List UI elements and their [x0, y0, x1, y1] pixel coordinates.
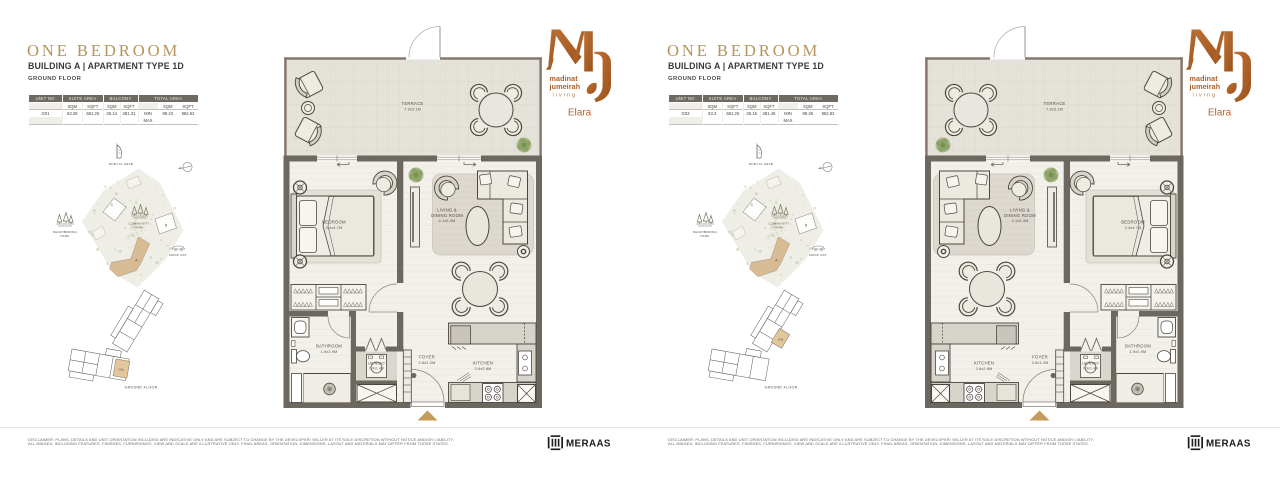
svg-text:DINING ROOM: DINING ROOM: [1004, 213, 1036, 218]
svg-text:BATHROOM: BATHROOM: [1125, 344, 1151, 349]
svg-text:LAUNDRY: LAUNDRY: [368, 362, 386, 366]
svg-text:0.9x1.4M: 0.9x1.4M: [369, 366, 384, 370]
svg-text:LIVING &: LIVING &: [437, 208, 457, 213]
svg-text:TERRACE: TERRACE: [1044, 101, 1066, 106]
svg-text:3.4x4.7M: 3.4x4.7M: [326, 226, 343, 230]
svg-text:4.1x5.3M: 4.1x5.3M: [439, 219, 456, 223]
svg-text:1.9x2.9M: 1.9x2.9M: [321, 350, 338, 354]
svg-text:LIVING &: LIVING &: [1010, 208, 1030, 213]
svg-text:TERRACE: TERRACE: [402, 101, 424, 106]
svg-text:KITCHEN: KITCHEN: [974, 361, 994, 366]
svg-text:LAUNDRY: LAUNDRY: [1082, 362, 1100, 366]
svg-text:FOYER: FOYER: [1032, 355, 1048, 360]
svg-text:BEDROOM: BEDROOM: [322, 220, 346, 225]
svg-text:FOYER: FOYER: [419, 355, 435, 360]
svg-text:KITCHEN: KITCHEN: [473, 361, 493, 366]
svg-text:BATHROOM: BATHROOM: [316, 344, 342, 349]
svg-text:7.9x3.1M: 7.9x3.1M: [1046, 107, 1063, 111]
svg-text:0.9x1.4M: 0.9x1.4M: [1083, 366, 1098, 370]
svg-text:3.4x4.7M: 3.4x4.7M: [1125, 226, 1142, 230]
svg-text:7.9x3.1M: 7.9x3.1M: [404, 107, 421, 111]
svg-text:1.9x2.9M: 1.9x2.9M: [1130, 350, 1147, 354]
svg-text:DINING ROOM: DINING ROOM: [431, 213, 463, 218]
svg-text:2.6x2.8M: 2.6x2.8M: [475, 367, 492, 371]
svg-text:2.6x1.2M: 2.6x1.2M: [1032, 361, 1049, 365]
svg-text:BEDROOM: BEDROOM: [1121, 220, 1145, 225]
svg-text:2.6x2.8M: 2.6x2.8M: [976, 367, 993, 371]
svg-text:2.6x1.2M: 2.6x1.2M: [419, 361, 436, 365]
svg-text:4.1x5.3M: 4.1x5.3M: [1012, 219, 1029, 223]
